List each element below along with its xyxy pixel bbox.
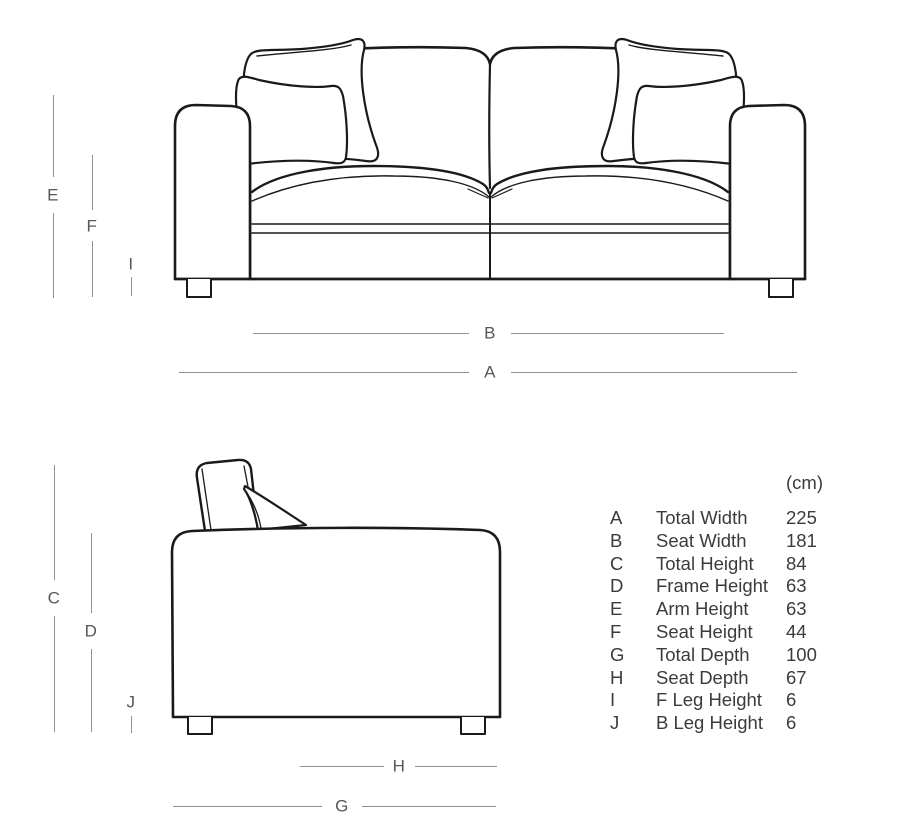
sofa-dimensions-diagram: E F I B A C D J H G (cm) A Total Width 2… xyxy=(0,0,918,834)
dim-line-I-lower xyxy=(131,277,132,296)
spec-key: D xyxy=(610,575,656,598)
spec-value: 181 xyxy=(786,530,850,553)
dim-line-E-upper xyxy=(53,95,54,177)
spec-row-F: F Seat Height 44 xyxy=(610,621,850,644)
dim-line-C-lower xyxy=(54,616,55,732)
spec-value: 67 xyxy=(786,667,850,690)
dim-label-B: B xyxy=(484,325,496,342)
dim-label-F: F xyxy=(87,218,98,235)
spec-row-J: J B Leg Height 6 xyxy=(610,712,850,735)
spec-label: Total Height xyxy=(656,553,786,576)
dim-line-F-lower xyxy=(92,241,93,297)
dim-label-G: G xyxy=(335,798,349,815)
dimension-spec-table: (cm) A Total Width 225 B Seat Width 181 … xyxy=(610,471,850,735)
dim-label-A: A xyxy=(484,364,496,381)
sofa-side-view-drawing xyxy=(172,460,500,734)
spec-label: Seat Height xyxy=(656,621,786,644)
dim-label-I: I xyxy=(128,256,133,273)
spec-key: C xyxy=(610,553,656,576)
spec-value: 100 xyxy=(786,644,850,667)
spec-value: 6 xyxy=(786,712,850,735)
spec-row-A: A Total Width 225 xyxy=(610,507,850,530)
spec-row-C: C Total Height 84 xyxy=(610,553,850,576)
spec-key: H xyxy=(610,667,656,690)
spec-row-D: D Frame Height 63 xyxy=(610,575,850,598)
dim-label-D: D xyxy=(85,623,98,640)
dim-line-A-right xyxy=(511,372,797,373)
spec-row-I: I F Leg Height 6 xyxy=(610,689,850,712)
unit-header: (cm) xyxy=(610,471,850,494)
spec-key: I xyxy=(610,689,656,712)
spec-key: G xyxy=(610,644,656,667)
spec-row-G: G Total Depth 100 xyxy=(610,644,850,667)
dim-line-G-right xyxy=(362,806,496,807)
spec-value: 225 xyxy=(786,507,850,530)
dim-line-D-lower xyxy=(91,649,92,732)
spec-label: Seat Depth xyxy=(656,667,786,690)
dim-label-C: C xyxy=(48,590,61,607)
dim-label-J: J xyxy=(127,694,136,711)
spec-key: B xyxy=(610,530,656,553)
spec-value: 6 xyxy=(786,689,850,712)
spec-value: 84 xyxy=(786,553,850,576)
spec-label: Total Width xyxy=(656,507,786,530)
dim-label-E: E xyxy=(47,187,59,204)
dim-label-H: H xyxy=(393,758,406,775)
dim-line-G-left xyxy=(173,806,322,807)
spec-key: F xyxy=(610,621,656,644)
spec-value: 44 xyxy=(786,621,850,644)
dim-line-B-left xyxy=(253,333,469,334)
dim-line-F-upper xyxy=(92,155,93,210)
dim-line-C-upper xyxy=(54,465,55,580)
spec-label: B Leg Height xyxy=(656,712,786,735)
spec-label: Frame Height xyxy=(656,575,786,598)
dim-line-A-left xyxy=(179,372,469,373)
spec-key: J xyxy=(610,712,656,735)
spec-value: 63 xyxy=(786,575,850,598)
spec-row-H: H Seat Depth 67 xyxy=(610,667,850,690)
spec-label: Arm Height xyxy=(656,598,786,621)
pillow-pair xyxy=(236,39,378,164)
spec-row-B: B Seat Width 181 xyxy=(610,530,850,553)
spec-label: F Leg Height xyxy=(656,689,786,712)
spec-key: A xyxy=(610,507,656,530)
dim-line-D-upper xyxy=(91,533,92,613)
spec-key: E xyxy=(610,598,656,621)
dim-line-H-left xyxy=(300,766,384,767)
spec-row-E: E Arm Height 63 xyxy=(610,598,850,621)
dim-line-H-right xyxy=(415,766,497,767)
dim-line-E-lower xyxy=(53,213,54,298)
spec-value: 63 xyxy=(786,598,850,621)
spec-label: Total Depth xyxy=(656,644,786,667)
dim-line-B-right xyxy=(511,333,724,334)
sofa-front-view-drawing xyxy=(175,39,805,297)
spec-label: Seat Width xyxy=(656,530,786,553)
dim-line-J-lower xyxy=(131,716,132,733)
